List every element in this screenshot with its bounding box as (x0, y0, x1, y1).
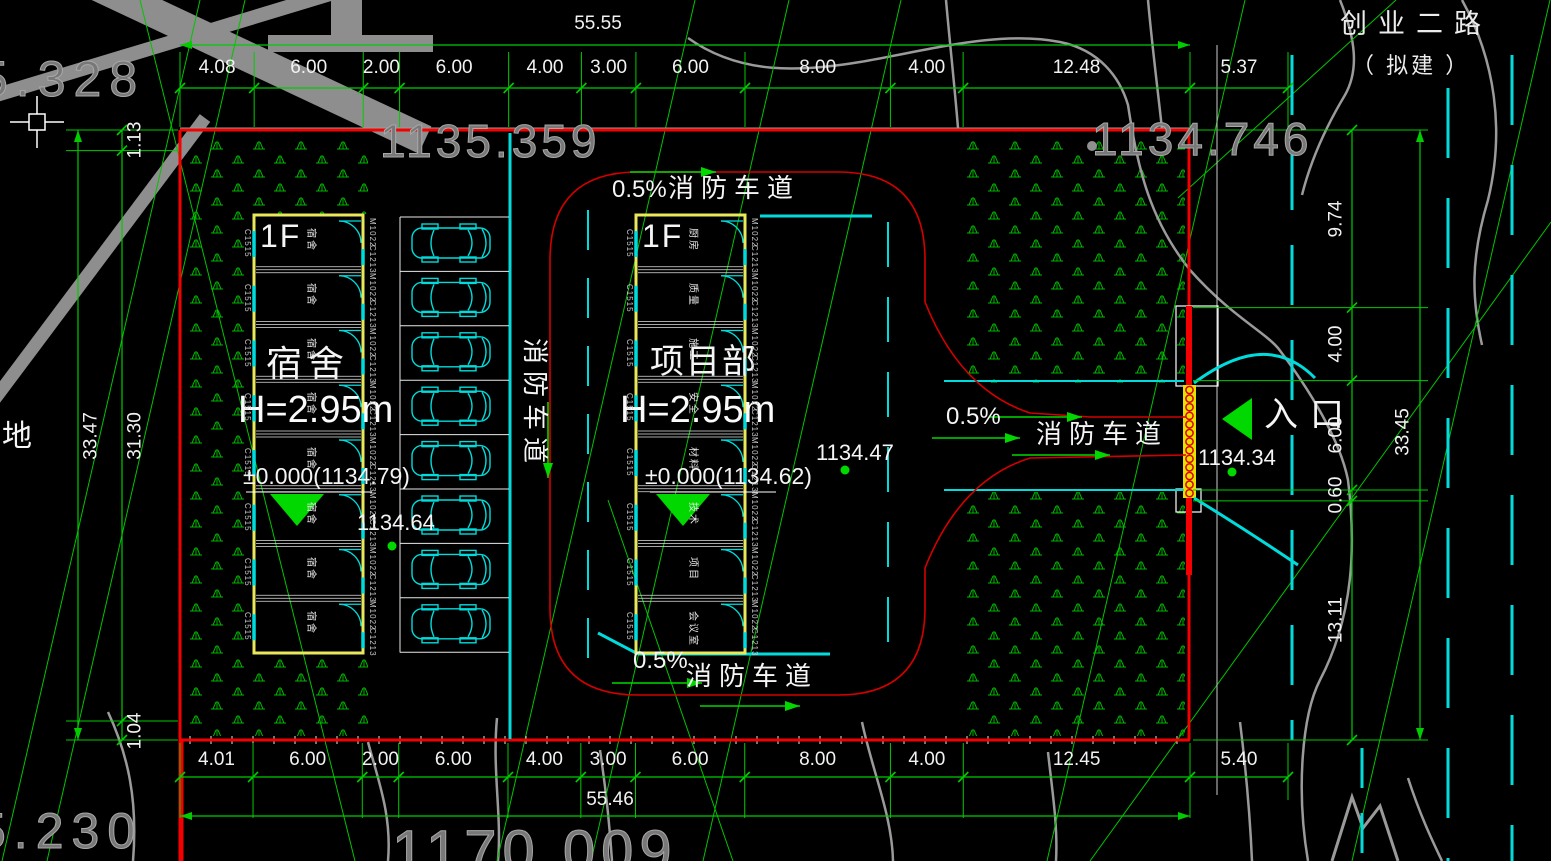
dimension-label: 8.00 (799, 58, 836, 79)
contour-label-bottom-left: 5.230 (0, 804, 143, 859)
door-code: M1022 (367, 218, 376, 247)
window-code: C1213 (749, 519, 758, 548)
contour-label-top-left: 5.328 (0, 52, 145, 107)
window-code: C1515 (624, 284, 633, 313)
window-code: C1515 (624, 612, 633, 641)
room-label: 项目 (687, 557, 698, 581)
window-code: C1213 (367, 355, 376, 384)
dimension-label: 31.30 (126, 412, 147, 460)
fire-lane-label-mid: 消防车道 (1036, 420, 1168, 449)
site-plan-canvas: 创业二路 （ 拟建 ） 5.328 1135.359 1134.746 5.23… (0, 0, 1551, 861)
dimension-label: 12.45 (1053, 750, 1101, 771)
fire-lane-label-top: 消防车道 (668, 174, 800, 203)
dimension-total-label: 33.45 (1394, 408, 1415, 456)
window-code: C1213 (367, 574, 376, 603)
door-code: M1022 (367, 273, 376, 302)
room-label: 宿舍 (305, 338, 316, 362)
dimension-label: 4.00 (526, 750, 563, 771)
dimension-label: 6.00 (672, 58, 709, 79)
label-layer: 创业二路 （ 拟建 ） 5.328 1135.359 1134.746 5.23… (0, 0, 1551, 861)
dimension-total-label: 55.46 (586, 790, 634, 811)
window-code: C1213 (749, 628, 758, 657)
window-code: C1213 (749, 409, 758, 438)
dimension-label: 6.00 (290, 58, 327, 79)
right-building-floor: 1F (642, 219, 683, 254)
dimension-label: 4.01 (198, 750, 235, 771)
window-code: C1515 (624, 393, 633, 422)
right-building-level: ±0.000(1134.62) (645, 464, 812, 489)
window-code: C1515 (242, 558, 251, 587)
door-code: M1022 (749, 218, 758, 247)
window-code: C1515 (242, 339, 251, 368)
dimension-label: 1.13 (126, 122, 147, 159)
window-code: C1515 (624, 448, 633, 477)
window-code: C1515 (624, 229, 633, 258)
room-label: 宿舍 (305, 557, 316, 581)
dimension-label: 0.60 (1327, 477, 1348, 514)
window-code: C1213 (749, 245, 758, 274)
slope-label-mid: 0.5% (946, 404, 1001, 430)
dimension-label: 4.00 (527, 58, 564, 79)
room-label: 质量 (687, 283, 698, 307)
window-code: C1213 (749, 464, 758, 493)
window-code: C1515 (242, 448, 251, 477)
left-building-level: ±0.000(1134.79) (243, 464, 410, 489)
dimension-label: 8.00 (799, 750, 836, 771)
dimension-label: 2.00 (363, 58, 400, 79)
window-code: C1515 (624, 503, 633, 532)
dimension-label: 6.00 (1327, 417, 1348, 454)
window-code: C1213 (367, 519, 376, 548)
door-code: M1022 (367, 492, 376, 521)
window-code: C1515 (242, 393, 251, 422)
road-elevation: 1134.47 (816, 441, 894, 465)
dimension-label: 6.00 (435, 750, 472, 771)
window-code: C1515 (242, 612, 251, 641)
road-name: 创业二路 (1340, 10, 1492, 40)
window-code: C1515 (242, 229, 251, 258)
contour-label-top-mid: 1135.359 (380, 116, 600, 167)
room-label: 会议室 (687, 611, 698, 647)
room-label: 宿舍 (305, 447, 316, 471)
door-code: M1022 (749, 382, 758, 411)
door-code: M1022 (749, 328, 758, 357)
door-code: M1022 (367, 601, 376, 630)
room-label: 材料 (687, 447, 698, 471)
slope-label-bottom: 0.5% (633, 648, 688, 674)
door-code: M1022 (749, 601, 758, 630)
window-code: C1515 (242, 503, 251, 532)
dimension-label: 4.00 (908, 750, 945, 771)
room-label: 施工 (687, 338, 698, 362)
room-label: 宿舍 (305, 611, 316, 635)
door-code: M1022 (367, 328, 376, 357)
dimension-label: 6.00 (436, 58, 473, 79)
window-code: C1213 (749, 355, 758, 384)
dimension-total-label: 33.47 (82, 412, 103, 460)
contour-label-bottom-mid: 1170.009 (392, 820, 678, 861)
door-code: M1022 (367, 547, 376, 576)
window-code: C1515 (242, 284, 251, 313)
door-code: M1022 (749, 547, 758, 576)
entrance-elevation: 1134.34 (1198, 446, 1276, 470)
fire-lane-label-vertical: 消防车道 (520, 338, 549, 470)
room-label: 宿舍 (305, 502, 316, 526)
door-code: M1022 (749, 437, 758, 466)
dimension-label: 6.00 (289, 750, 326, 771)
door-code: M1022 (749, 273, 758, 302)
dimension-label: 1.04 (126, 712, 147, 749)
site-label: 地 (2, 420, 32, 453)
window-code: C1213 (749, 574, 758, 603)
contour-label-top-right: 1134.746 (1092, 114, 1312, 165)
dimension-label: 4.00 (1327, 326, 1348, 363)
dimension-label: 3.00 (590, 58, 627, 79)
room-label: 厨房 (687, 228, 698, 252)
fire-lane-label-bottom: 消防车道 (686, 662, 818, 691)
room-label: 宿舍 (305, 392, 316, 416)
dimension-label: 6.00 (672, 750, 709, 771)
door-code: M1022 (367, 382, 376, 411)
window-code: C1515 (624, 558, 633, 587)
dimension-label: 9.74 (1327, 200, 1348, 237)
room-label: 宿舍 (305, 228, 316, 252)
window-code: C1515 (624, 339, 633, 368)
window-code: C1213 (367, 409, 376, 438)
dimension-label: 5.40 (1221, 750, 1258, 771)
dimension-label: 5.37 (1221, 58, 1258, 79)
left-building-floor: 1F (260, 219, 301, 254)
window-code: C1213 (367, 628, 376, 657)
dimension-label: 12.48 (1053, 58, 1101, 79)
door-code: M1022 (749, 492, 758, 521)
window-code: C1213 (367, 245, 376, 274)
dimension-label: 3.00 (590, 750, 627, 771)
window-code: C1213 (749, 300, 758, 329)
dimension-label: 4.00 (908, 58, 945, 79)
room-label: 宿舍 (305, 283, 316, 307)
road-status: （ 拟建 ） (1352, 54, 1470, 78)
right-building-name: 项目部 (650, 344, 758, 381)
dimension-total-label: 55.55 (574, 14, 622, 35)
door-code: M1022 (367, 437, 376, 466)
window-code: C1213 (367, 464, 376, 493)
room-label: 技术 (687, 502, 698, 526)
dimension-label: 2.00 (362, 750, 399, 771)
slope-label-top: 0.5% (612, 177, 667, 203)
dimension-label: 13.11 (1327, 597, 1348, 643)
room-label: 安全 (687, 392, 698, 416)
window-code: C1213 (367, 300, 376, 329)
dimension-label: 4.08 (199, 58, 236, 79)
